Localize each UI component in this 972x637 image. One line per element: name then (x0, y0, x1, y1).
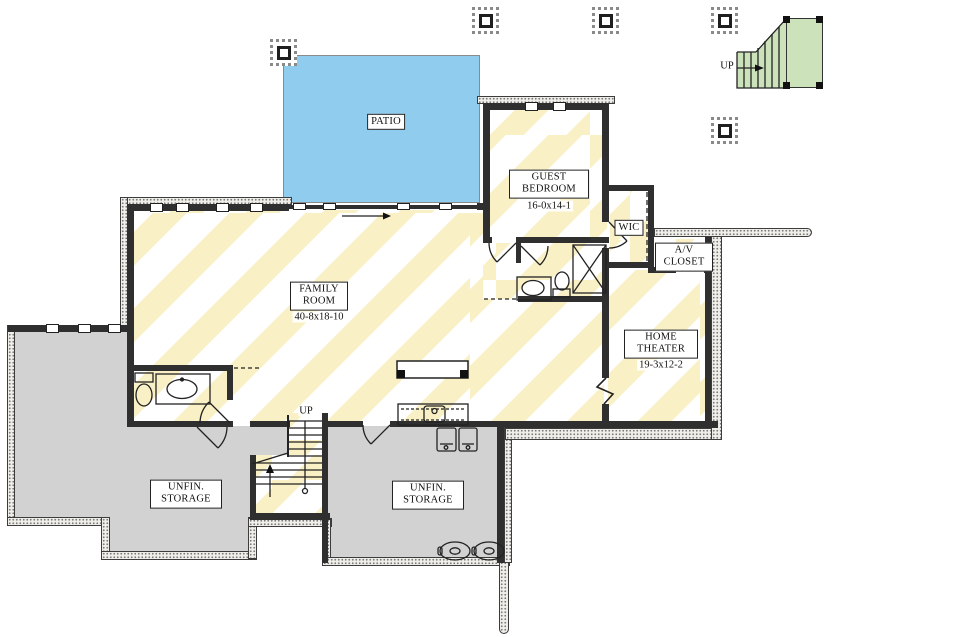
wall-bedroom-south-a (483, 237, 492, 243)
pier-column-4 (711, 7, 738, 34)
storage-left-area (14, 331, 129, 521)
storage-left-label: UNFIN. STORAGE (150, 480, 222, 509)
wall-family-left (127, 204, 134, 332)
wall-stair-west (250, 455, 256, 520)
wall-stair-top (250, 421, 290, 427)
window-bedroom-2 (553, 102, 566, 111)
pier-column-core (718, 14, 732, 28)
window-slider-1 (293, 203, 306, 210)
guest-bedroom-label: GUEST BEDROOM (509, 170, 589, 199)
wall-storagec-top-a (322, 421, 363, 427)
av-closet-label: A/V CLOSET (655, 243, 713, 272)
floor-plan: PATIO FAMILY ROOM 40-8x18-10 GUEST BEDRO… (0, 0, 972, 637)
pier-column-3 (592, 7, 619, 34)
wall-wic-top (602, 185, 654, 191)
window-slider-3 (397, 203, 410, 210)
patio-label: PATIO (367, 114, 405, 130)
foundation-bottom-center (322, 557, 510, 566)
foundation-stub-down (499, 557, 509, 634)
exterior-stair-flight (737, 19, 786, 88)
family-room-label: FAMILY ROOM (290, 282, 348, 311)
wall-bath-south (518, 296, 609, 302)
foundation-right-arm (654, 228, 812, 237)
wall-bedroom-right-upper (602, 103, 609, 222)
window-family-4 (250, 203, 263, 212)
pier-column-5 (711, 117, 738, 144)
home-theater-dims: 19-3x12-2 (637, 360, 685, 371)
wall-patio-slider (286, 205, 482, 209)
wall-bottom-right (505, 421, 718, 428)
foundation-bottom-a (7, 517, 110, 526)
bath-hall-floor (483, 243, 607, 299)
wall-storagec-top-b (390, 421, 505, 427)
exterior-up-label: UP (719, 61, 734, 72)
wic-label: WIC (614, 220, 643, 236)
wall-theater-left-a (602, 267, 609, 378)
wall-bedroom-left (483, 103, 490, 243)
wall-bedroom-top (483, 103, 609, 110)
window-family-1 (150, 203, 163, 212)
foundation-bottom-theater (505, 428, 722, 440)
wall-stair-bottom (250, 513, 330, 520)
window-bedroom-1 (525, 102, 538, 111)
pier-column-core (479, 14, 493, 28)
wall-powder-west (127, 332, 134, 427)
storage-left-notch (105, 519, 252, 555)
wall-wic-right (648, 185, 654, 238)
wall-bath-stub (516, 243, 521, 263)
foundation-left-storage (7, 325, 15, 525)
wall-powder-bottom (127, 421, 233, 427)
home-theater-label: HOME THEATER (624, 330, 698, 359)
guest-bedroom-dims: 16-0x14-1 (525, 201, 573, 212)
storage-center-label: UNFIN. STORAGE (392, 481, 464, 510)
family-room-dims: 40-8x18-10 (293, 312, 346, 323)
pier-column-2 (472, 7, 499, 34)
window-slider-2 (323, 203, 336, 210)
pier-column-1 (270, 39, 297, 66)
wall-bedroom-south-b (516, 237, 609, 243)
pier-column-core (599, 14, 613, 28)
pier-column-core (277, 46, 291, 60)
window-storage-3 (108, 324, 121, 333)
wall-wic-bottom (602, 262, 654, 268)
wall-powder-east (227, 365, 233, 400)
exterior-stair-landing (786, 18, 823, 88)
wall-storagec-east (497, 421, 504, 563)
window-family-3 (216, 203, 229, 212)
pier-column-core (718, 124, 732, 138)
wall-powder-top (127, 365, 233, 371)
interior-up-label: UP (298, 406, 313, 417)
foundation-right-of-storage (504, 427, 512, 563)
window-slider-4 (439, 203, 452, 210)
stair-lower-floor (255, 455, 323, 515)
window-storage-2 (78, 324, 91, 333)
wall-stair-east (322, 413, 328, 563)
window-family-2 (176, 203, 189, 212)
window-storage-1 (46, 324, 59, 333)
stair-upper-floor (288, 413, 324, 457)
foundation-bottom-notch (101, 551, 257, 560)
